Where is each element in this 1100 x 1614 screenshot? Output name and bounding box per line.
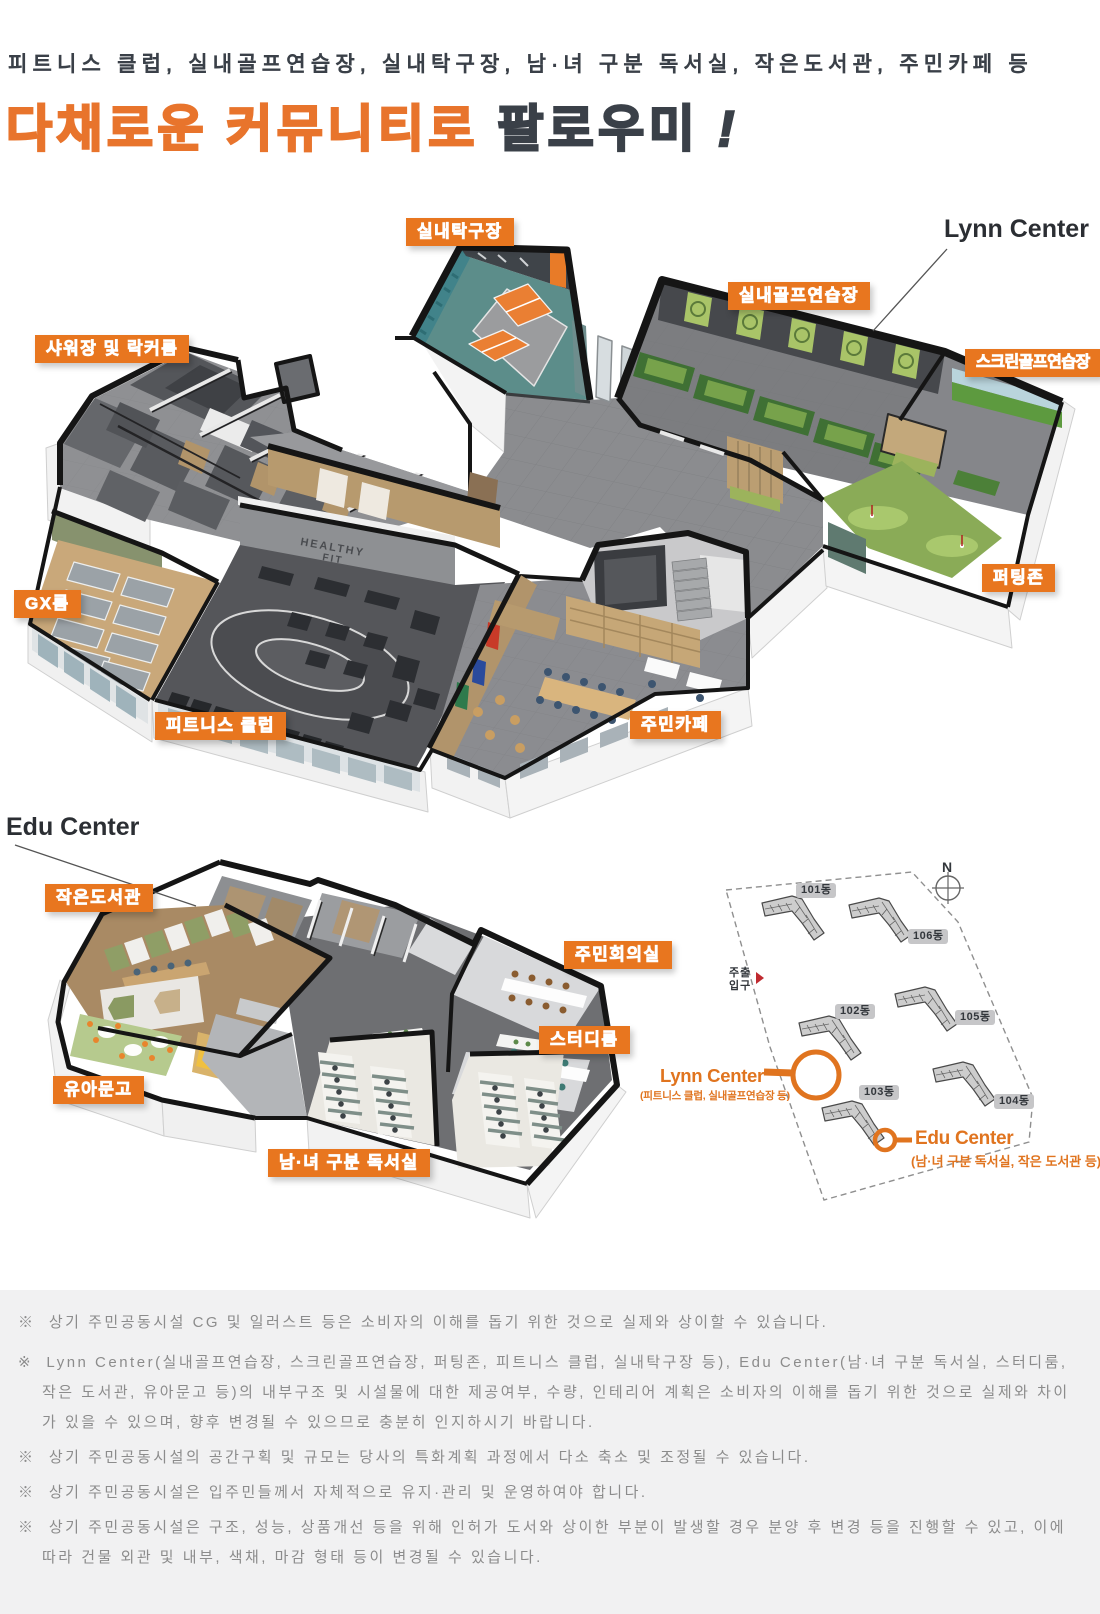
svg-text:N: N <box>942 859 952 875</box>
